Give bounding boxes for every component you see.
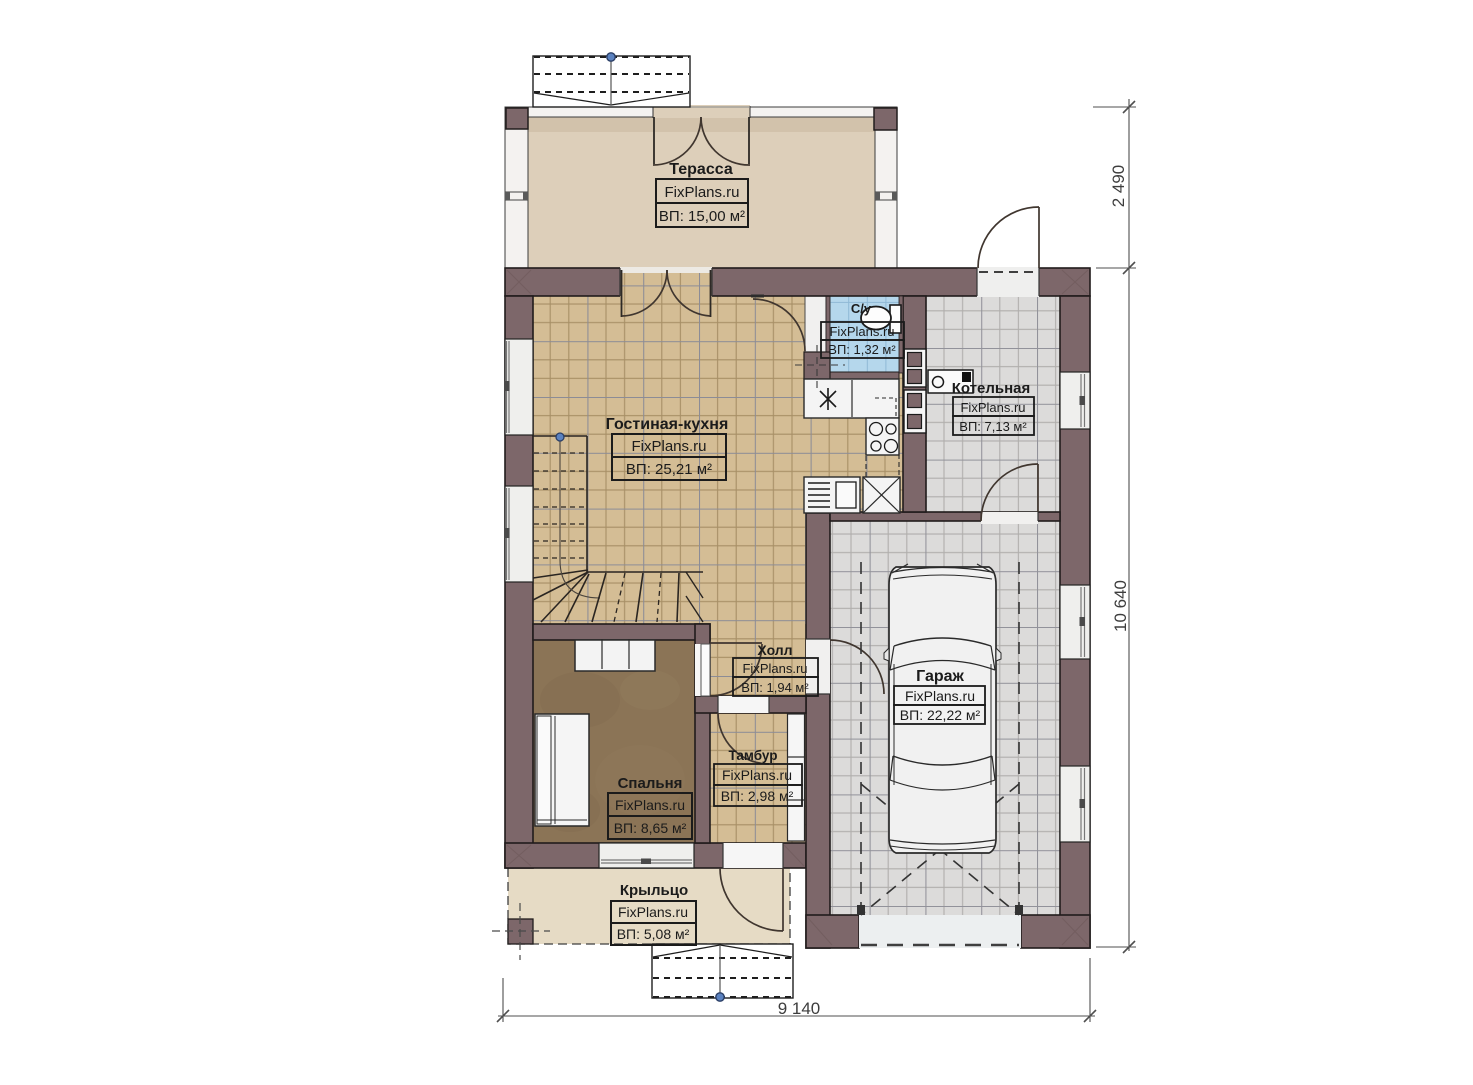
svg-text:Спальня: Спальня — [618, 775, 683, 792]
svg-text:ВП: 22,22 м²: ВП: 22,22 м² — [900, 707, 981, 723]
svg-text:Холл: Холл — [757, 642, 792, 658]
svg-text:ВП: 15,00 м²: ВП: 15,00 м² — [659, 208, 745, 225]
svg-text:FixPlans.ru: FixPlans.ru — [960, 400, 1025, 415]
svg-text:ВП: 7,13 м²: ВП: 7,13 м² — [959, 419, 1027, 434]
svg-text:С/у: С/у — [851, 301, 872, 316]
svg-text:FixPlans.ru: FixPlans.ru — [615, 797, 685, 813]
svg-text:FixPlans.ru: FixPlans.ru — [664, 184, 739, 201]
svg-text:2 490: 2 490 — [1109, 165, 1128, 208]
svg-text:Гостиная-кухня: Гостиная-кухня — [606, 416, 729, 433]
svg-text:FixPlans.ru: FixPlans.ru — [631, 438, 706, 455]
svg-text:ВП: 1,32 м²: ВП: 1,32 м² — [828, 342, 896, 357]
svg-text:FixPlans.ru: FixPlans.ru — [618, 904, 688, 920]
svg-text:ВП: 2,98 м²: ВП: 2,98 м² — [721, 788, 794, 804]
svg-text:Котельная: Котельная — [952, 380, 1031, 397]
svg-text:Тамбур: Тамбур — [729, 748, 778, 763]
svg-text:FixPlans.ru: FixPlans.ru — [829, 324, 894, 339]
svg-text:ВП: 8,65 м²: ВП: 8,65 м² — [614, 820, 687, 836]
svg-text:Крыльцо: Крыльцо — [620, 882, 688, 899]
svg-text:ВП: 1,94 м²: ВП: 1,94 м² — [741, 680, 809, 695]
svg-text:FixPlans.ru: FixPlans.ru — [722, 767, 792, 783]
svg-text:10 640: 10 640 — [1111, 580, 1130, 632]
svg-text:Терасса: Терасса — [669, 161, 733, 178]
svg-text:FixPlans.ru: FixPlans.ru — [742, 661, 807, 676]
svg-text:9 140: 9 140 — [778, 999, 821, 1018]
svg-text:FixPlans.ru: FixPlans.ru — [905, 688, 975, 704]
svg-text:ВП: 5,08 м²: ВП: 5,08 м² — [617, 926, 690, 942]
svg-text:Гараж: Гараж — [916, 668, 964, 685]
svg-text:ВП: 25,21 м²: ВП: 25,21 м² — [626, 461, 712, 478]
